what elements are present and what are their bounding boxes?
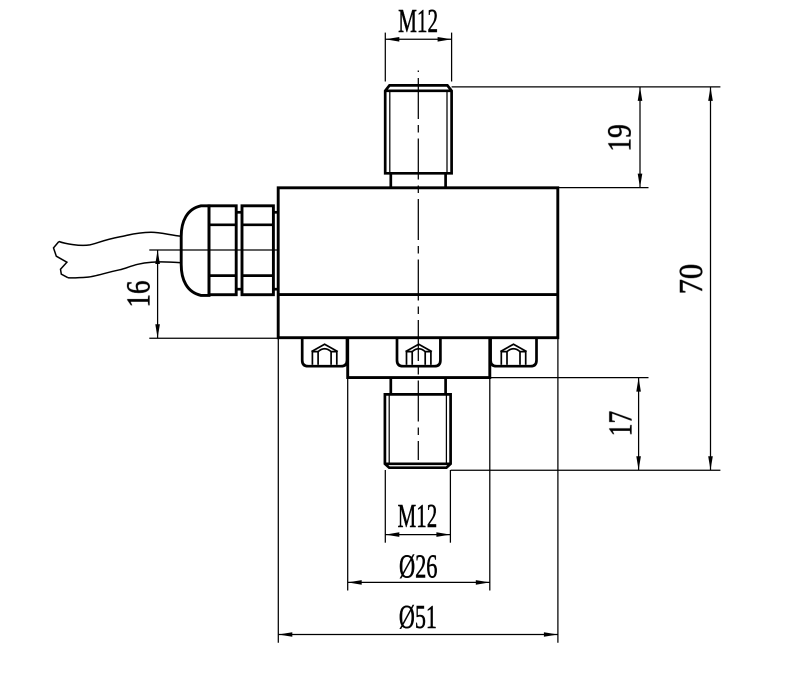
svg-text:Ø26: Ø26: [399, 548, 438, 585]
svg-text:M12: M12: [398, 3, 438, 40]
svg-text:Ø51: Ø51: [399, 599, 437, 636]
svg-text:17: 17: [603, 411, 640, 437]
svg-text:70: 70: [673, 264, 710, 295]
svg-text:16: 16: [121, 281, 158, 308]
svg-text:M12: M12: [398, 498, 438, 535]
svg-text:19: 19: [602, 124, 639, 152]
